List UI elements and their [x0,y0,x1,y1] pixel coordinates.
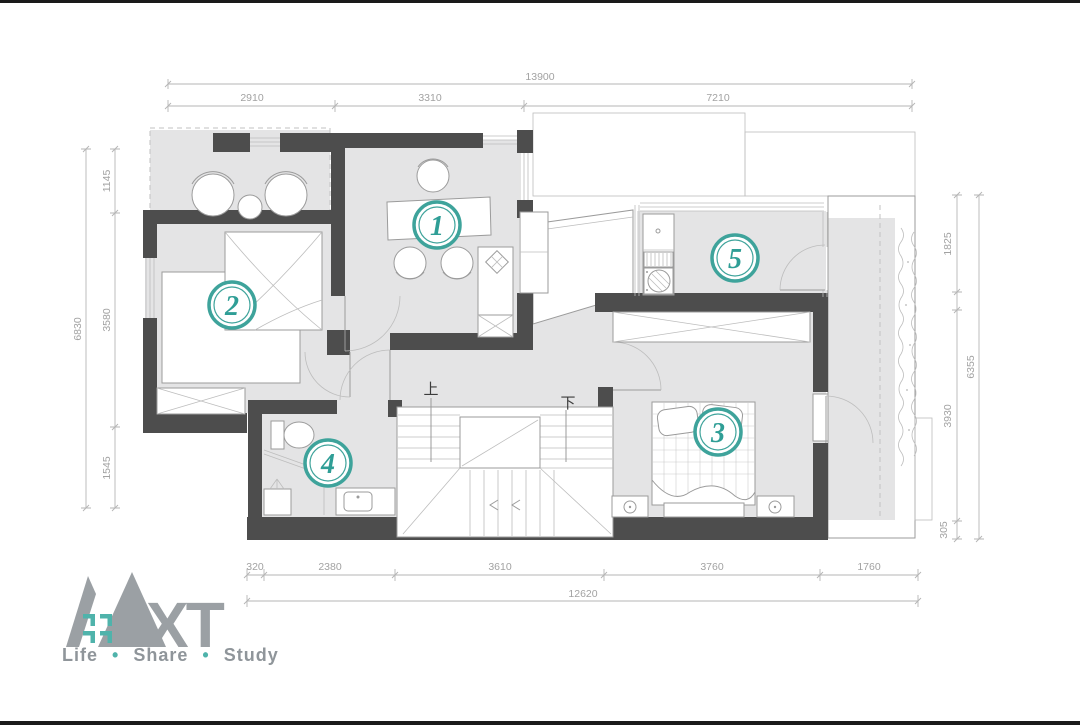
sink-rack-icon [644,252,673,267]
stove-icon [644,268,673,294]
dim-bottom-seg4: 3760 [700,561,724,573]
tagline-word: Study [224,645,279,665]
room-label-3: 3 [695,409,741,455]
wardrobe-icon [613,312,810,342]
dim-bottom-seg2: 2380 [318,561,342,573]
dim-top-seg1: 2910 [240,92,264,104]
room-number: 4 [320,449,335,480]
stairs-down-label: 下 [560,394,575,412]
brand-logo: XT Life • Share • Study [62,572,279,665]
chair-icon [417,160,449,192]
pillow-icon [656,405,699,436]
dim-top-seg2: 3310 [418,92,442,104]
terrace-wavy-strip [899,228,917,466]
dim-bottom-seg5: 1760 [857,561,881,573]
dim-right-seg3: 305 [938,521,950,539]
dim-right-seg2: 3930 [942,404,954,428]
room-number: 1 [430,211,444,242]
tagline-bullet: • [202,645,209,665]
kitchen-fixtures [643,214,674,295]
stairs [397,398,613,537]
floor-plan-sheet: 13900 2910 3310 7210 6830 1145 3580 1545… [0,0,1080,725]
footboard [664,503,744,517]
dimension-left: 6830 1145 3580 1545 [72,146,120,511]
room-label-1: 1 [414,202,460,248]
terrace-step [915,418,932,520]
dimension-bottom: 320 2380 3610 3760 1760 12620 [244,561,921,607]
chair-icon [265,174,307,216]
floor-plan-canvas: 13900 2910 3310 7210 6830 1145 3580 1545… [0,0,1080,725]
dim-right-seg1: 1825 [942,232,954,256]
closet [157,388,245,414]
dim-bottom-seg1: 320 [246,561,264,573]
room-number: 5 [728,244,742,275]
dim-right-total: 6355 [965,355,977,379]
dim-top-total: 13900 [525,71,554,83]
logo-tagline: Life • Share • Study [62,645,279,665]
roof-void-outline [533,113,745,196]
dim-bottom-total: 12620 [568,588,597,600]
side-table-icon [238,195,262,219]
dimension-right: 1825 3930 305 6355 [938,192,984,542]
terrace-floor [828,218,895,520]
room-number: 3 [710,418,725,449]
dim-left-seg1: 1145 [101,170,113,193]
tagline-word: Share [133,645,188,665]
stairs-up-label: 上 [423,380,438,398]
kitchen-window-icon [640,203,824,211]
dim-left-total: 6830 [72,317,84,341]
dim-left-seg3: 1545 [101,456,113,480]
room-number: 2 [224,291,239,322]
tagline-word: Life [62,645,98,665]
tagline-bullet: • [112,645,119,665]
dim-top-seg3: 7210 [706,92,730,104]
dim-bottom-seg3: 3610 [488,561,512,573]
room-label-2: 2 [209,282,255,328]
cabinet-icon [520,212,548,293]
room-label-5: 5 [712,235,758,281]
upper-terrace-outline [745,132,915,196]
chair-icon [192,174,234,216]
sink-vanity-icon [336,488,395,515]
room-label-4: 4 [305,440,351,486]
toilet-icon [271,421,314,449]
dim-left-seg2: 3580 [101,308,113,332]
dimension-top: 13900 2910 3310 7210 [165,71,915,112]
study-right-window-icon [520,153,528,200]
